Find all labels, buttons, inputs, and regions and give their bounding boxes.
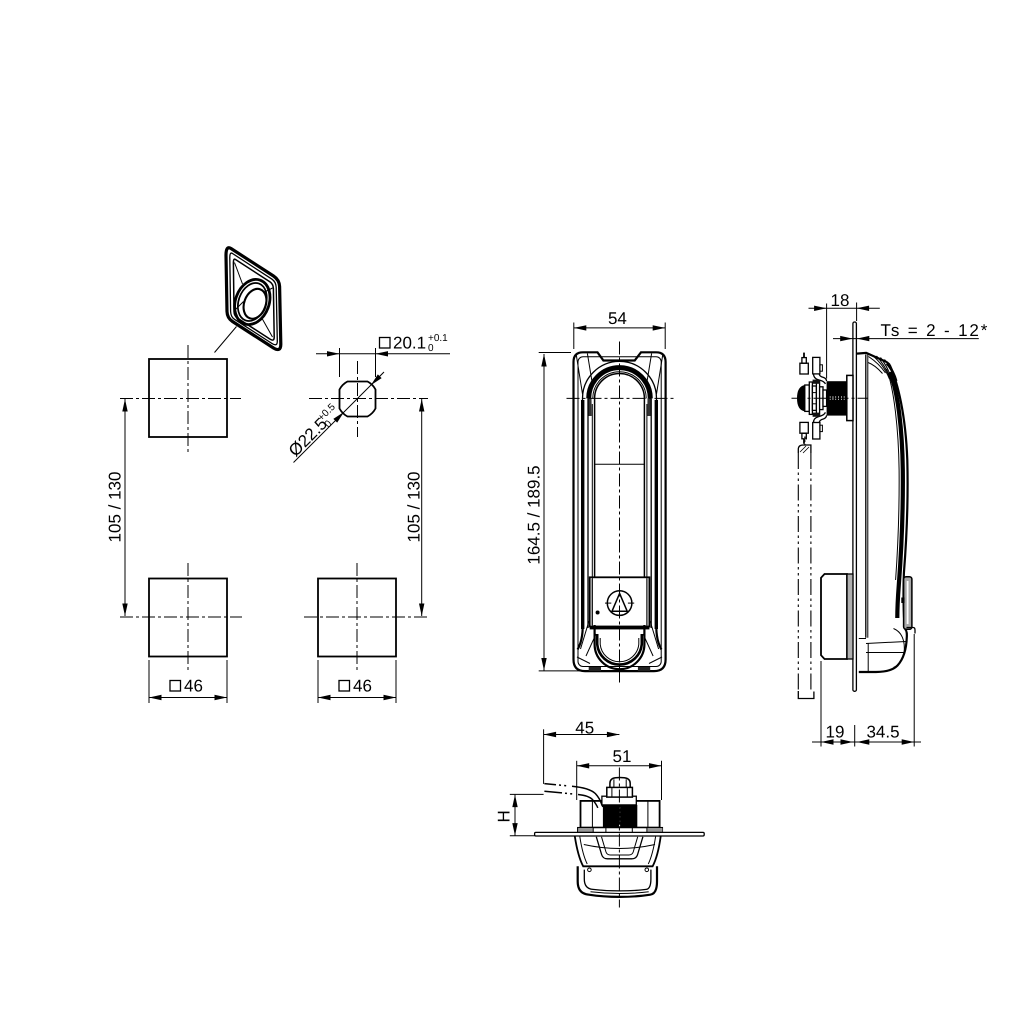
svg-text:34.5: 34.5 [866,723,899,742]
svg-text:51: 51 [613,747,632,766]
svg-text:105 / 130: 105 / 130 [405,472,424,543]
svg-text:20.1: 20.1 [393,334,426,353]
svg-text:105 / 130: 105 / 130 [106,472,125,543]
svg-text:H: H [495,810,514,822]
svg-text:164.5 / 189.5: 164.5 / 189.5 [525,465,544,564]
svg-text:54: 54 [608,309,627,328]
svg-text:0: 0 [428,343,434,354]
svg-text:18: 18 [831,291,850,310]
svg-text:45: 45 [575,719,594,738]
svg-text:Ts = 2 - 12*: Ts = 2 - 12* [881,321,990,340]
svg-text:19: 19 [826,723,845,742]
svg-text:46: 46 [353,677,372,696]
svg-text:46: 46 [184,677,203,696]
